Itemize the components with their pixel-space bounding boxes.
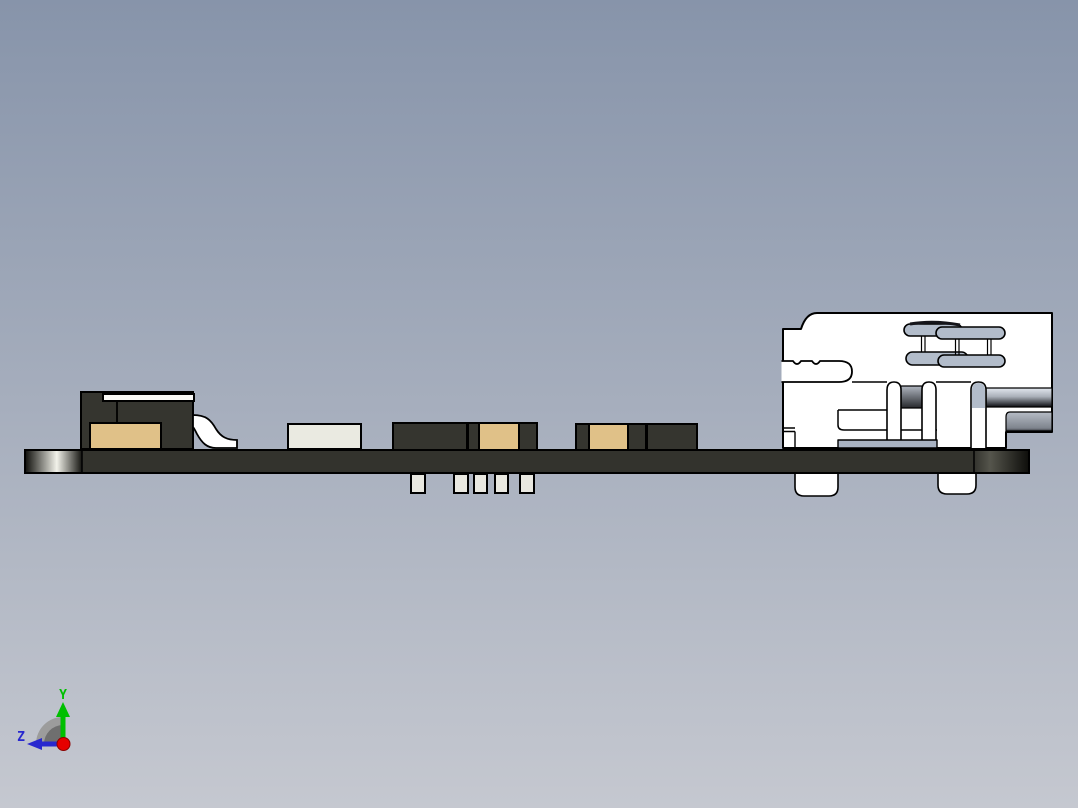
connector-barrel-upper <box>986 388 1052 407</box>
origin-dot <box>57 738 70 751</box>
pin-5[interactable] <box>520 474 534 493</box>
pin-1[interactable] <box>411 474 425 493</box>
pcb-substrate <box>25 450 1029 473</box>
pcb-right-edge <box>974 451 1028 472</box>
component-3-cap-right[interactable] <box>628 424 646 450</box>
connector-cavity <box>901 386 922 408</box>
cad-scene: Y Z <box>0 0 1078 808</box>
z-axis-arrowhead <box>27 738 42 750</box>
connector-base-strip <box>838 440 937 448</box>
board-components <box>81 392 697 493</box>
pin-3[interactable] <box>474 474 487 493</box>
component-dark-1[interactable] <box>393 423 467 450</box>
ic-top-strip[interactable] <box>103 394 194 401</box>
component-dark-2[interactable] <box>647 424 697 450</box>
connector-barrel-lower <box>1006 412 1052 431</box>
z-axis-label: Z <box>17 730 25 745</box>
spring-top-right <box>936 327 1005 339</box>
pcb-left-edge <box>26 451 82 472</box>
connector-leg-1 <box>887 382 901 448</box>
component-2-body[interactable] <box>479 423 519 450</box>
connector-foot-right <box>938 473 976 494</box>
component-2-cap-left[interactable] <box>468 423 479 450</box>
ic-gullwing-lead <box>193 415 237 448</box>
component-white[interactable] <box>288 424 361 449</box>
connector-side-slot <box>782 361 853 382</box>
ic-tan-base[interactable] <box>90 423 161 449</box>
connector-foot-left <box>795 473 838 496</box>
connector-leg-2 <box>922 382 936 448</box>
component-3-cap-left[interactable] <box>576 424 589 450</box>
y-axis-label: Y <box>59 688 67 703</box>
pin-2[interactable] <box>454 474 468 493</box>
pin-4[interactable] <box>495 474 508 493</box>
cad-viewport[interactable]: Y Z <box>0 0 1078 808</box>
connector-leg-3-cap <box>972 383 985 408</box>
component-2-cap-right[interactable] <box>519 423 537 450</box>
orientation-triad[interactable]: Y Z <box>17 688 70 751</box>
component-3-body[interactable] <box>589 424 628 450</box>
y-axis-arrowhead <box>56 702 70 717</box>
spring-bottom-right <box>938 355 1005 367</box>
pcb-board[interactable] <box>25 450 1029 473</box>
